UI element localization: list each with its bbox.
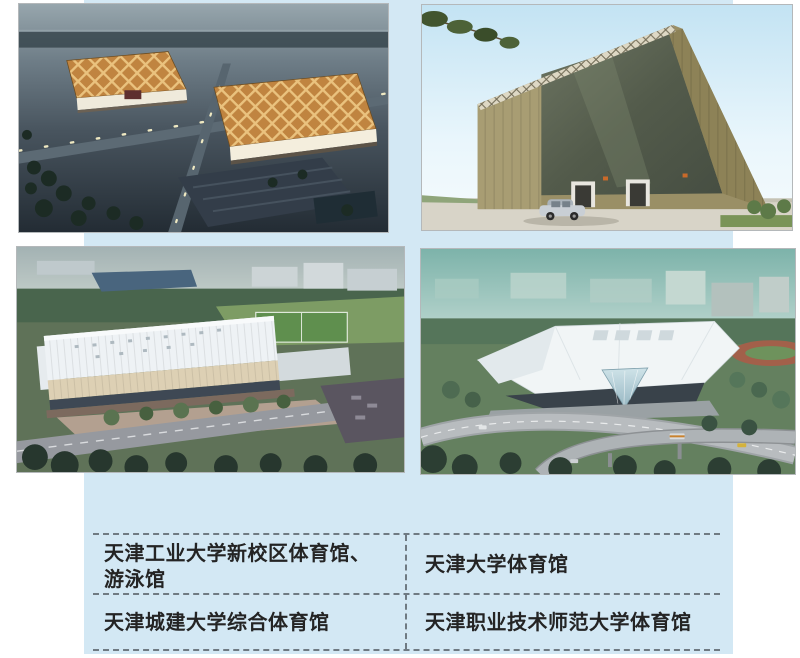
photo-tute-gym	[420, 248, 796, 475]
photo-tcu-gym	[16, 246, 405, 473]
photo-tjpu-gym-natatorium: ​	[18, 3, 389, 233]
caption-tju-gym: 天津大学体育馆	[425, 552, 569, 578]
golden-gym-small	[67, 52, 187, 113]
caption-divider-vertical	[405, 535, 407, 649]
page: ​	[0, 0, 800, 658]
photo-tjpu-illustration: ​	[19, 4, 388, 232]
photo-tcu-illustration	[17, 247, 404, 472]
caption-tcu-gym: 天津城建大学综合体育馆	[104, 610, 330, 636]
photo-tute-illustration	[421, 249, 795, 474]
caption-line: 天津工业大学新校区体育馆、	[104, 541, 371, 567]
caption-tjpu-gym-natatorium: 天津工业大学新校区体育馆、 游泳馆	[104, 541, 371, 593]
caption-divider-bottom	[93, 649, 720, 651]
photo-tju-illustration	[422, 5, 792, 230]
photo-tju-gym	[421, 4, 793, 231]
caption-line: 游泳馆	[104, 567, 371, 593]
caption-tute-gym: 天津职业技术师范大学体育馆	[425, 610, 692, 636]
